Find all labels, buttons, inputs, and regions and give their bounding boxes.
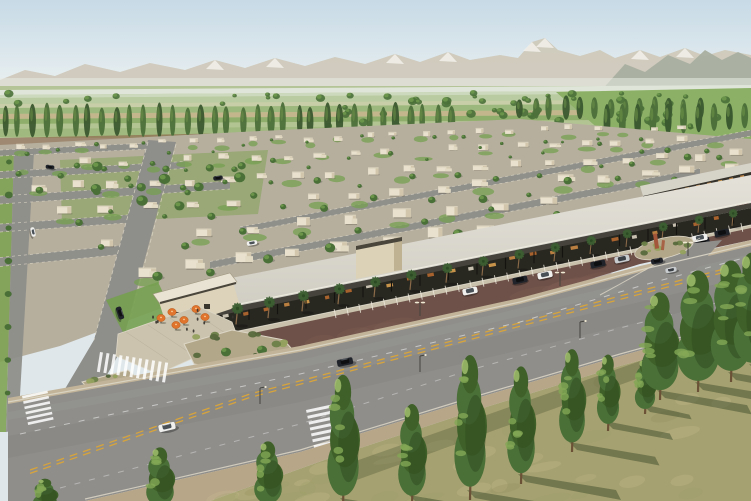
rendering-canvas [0, 0, 751, 501]
aerial-render [0, 0, 751, 501]
